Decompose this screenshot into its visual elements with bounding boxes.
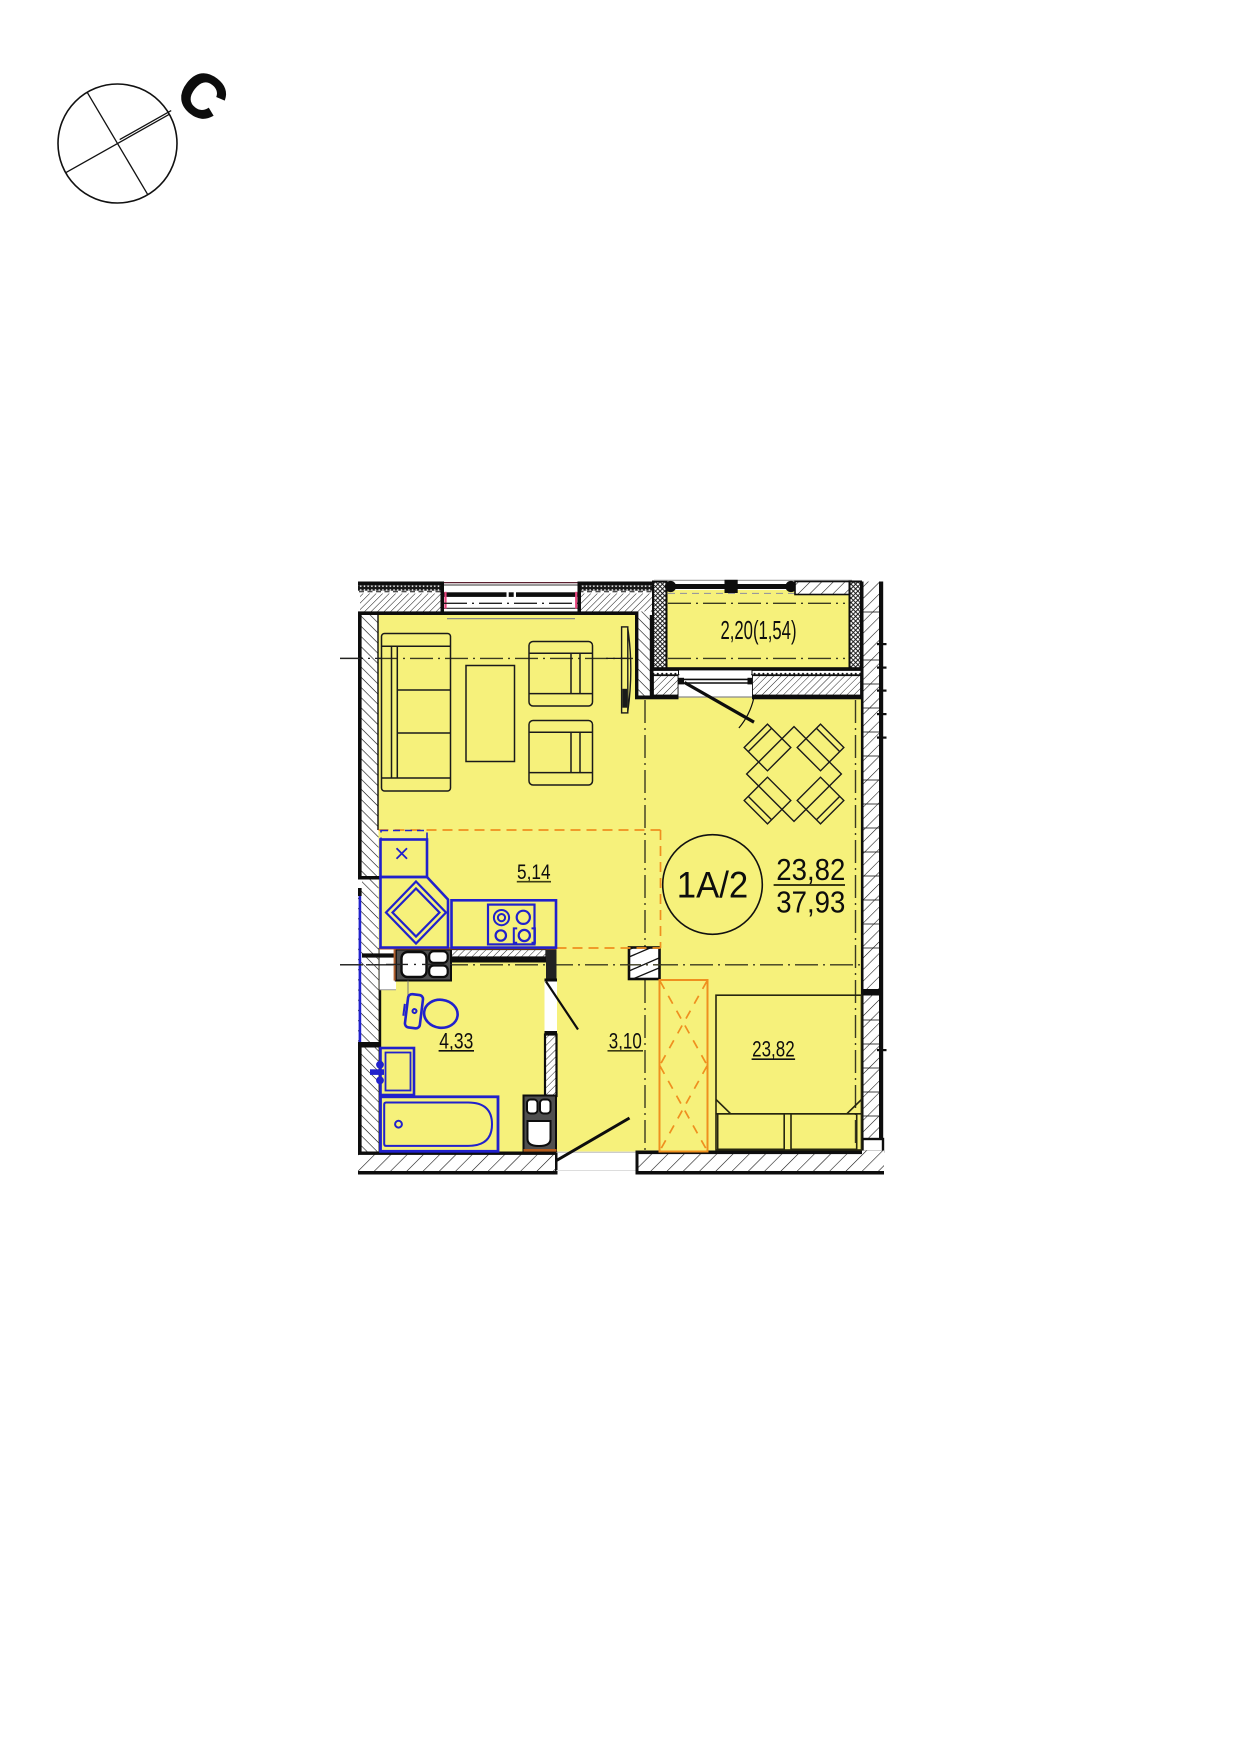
svg-text:37,93: 37,93 [776,885,845,920]
svg-text:1А/2: 1А/2 [677,864,749,905]
svg-text:2,20(1,54): 2,20(1,54) [721,615,797,645]
svg-text:3,10: 3,10 [609,1028,642,1053]
svg-text:5,14: 5,14 [517,861,551,884]
svg-text:23,82: 23,82 [752,1037,795,1062]
svg-text:4,33: 4,33 [439,1028,473,1053]
svg-text:23,82: 23,82 [776,852,845,887]
